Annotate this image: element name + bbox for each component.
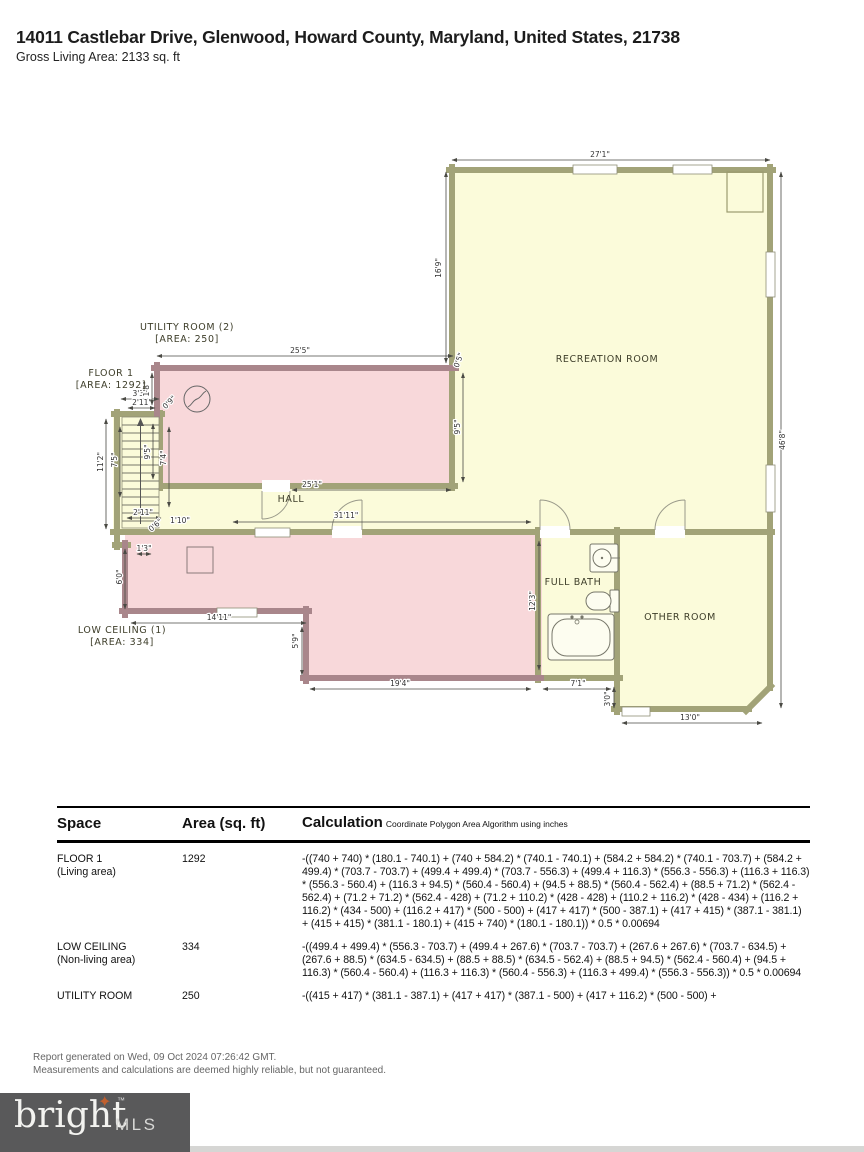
door-opening [332,526,362,538]
window [673,165,712,174]
brightmls-logo: bright ✦ ™ MLS [0,1093,190,1152]
low-ceiling-area [125,530,542,680]
sink-icon [590,544,620,572]
calculation-note: Coordinate Polygon Area Algorithm using … [386,819,568,829]
area-cell: 250 [182,990,302,1003]
room-label-full-bath: FULL BATH [545,577,602,588]
dimension-label: 11'2" [96,452,105,472]
area-cell: 334 [182,941,302,980]
door-opening [262,480,290,492]
disclaimer-text: Measurements and calculations are deemed… [33,1065,386,1076]
space-name: FLOOR 1 [57,853,182,866]
door-opening [655,526,685,538]
table-row-low-ceiling: LOW CEILING (Non-living area) 334 -((499… [57,931,810,980]
dimension-label: 3'0" [603,691,612,706]
room-area-label-utility-room: [AREA: 250] [155,334,219,345]
space-subtitle: (Non-living area) [57,954,182,967]
hall-area [113,483,545,535]
space-cell: LOW CEILING (Non-living area) [57,941,182,980]
table-row-floor-1: FLOOR 1 (Living area) 1292 -((740 + 740)… [57,843,810,931]
utility-room-area [155,365,455,488]
bathtub-icon [548,614,614,660]
door-opening [540,526,570,538]
dimension-label: 31'11" [334,511,359,520]
dimension-label: 7'1" [570,679,585,688]
col-header-space: Space [57,815,182,832]
room-label-recreation-room: RECREATION ROOM [556,354,659,365]
dimension-label: 13'0" [680,713,700,722]
dimension-label: 7'5" [110,452,119,467]
space-cell: UTILITY ROOM [57,990,182,1003]
room-label-floor-1: FLOOR 1 [88,368,133,379]
room-area-label-low-ceiling: [AREA: 334] [90,637,154,648]
dimension-label: 14'11" [207,613,232,622]
space-subtitle: (Living area) [57,866,182,879]
room-fills [113,167,773,712]
recreation-room-area [452,167,773,535]
calc-cell: -((499.4 + 499.4) * (556.3 - 703.7) + (4… [302,941,810,980]
space-name: LOW CEILING [57,941,182,954]
calc-cell: -((415 + 417) * (381.1 - 387.1) + (417 +… [302,990,810,1003]
star-icon: ✦ [98,1092,111,1111]
room-label-other-room: OTHER ROOM [644,612,716,623]
dimension-label: 25'1" [302,480,322,489]
toilet-icon [586,590,619,612]
dimension-label: 25'5" [290,346,310,355]
window [766,465,775,512]
dimension-label: 19'4" [390,679,410,688]
report-generated-text: Report generated on Wed, 09 Oct 2024 07:… [33,1052,276,1063]
window [255,528,290,537]
dimension-label: 1'10" [170,516,190,525]
dimension-label: 2'11" [132,398,152,407]
window [766,252,775,297]
dimension-label: 16'9" [434,258,443,278]
dimension-label: 9'5" [453,419,462,434]
window [573,165,617,174]
area-cell: 1292 [182,853,302,931]
dimension-label: 12'3" [528,591,537,611]
room-label-low-ceiling: LOW CEILING (1) [78,625,166,636]
table-row-utility-room: UTILITY ROOM 250 -((415 + 417) * (381.1 … [57,980,810,1003]
logo-wordmark: bright ✦ ™ [14,1095,126,1136]
room-area-label-floor-1: [AREA: 1292] [76,380,146,391]
calculation-title: Calculation [302,814,383,831]
dimension-label: 46'8" [778,430,787,450]
dimension-label: 27'1" [590,150,610,159]
room-label-utility-room: UTILITY ROOM (2) [140,322,234,333]
dimension-label: 2'11" [133,508,153,517]
dimension-label: 7'4" [159,450,168,465]
floor-plan: 27'1"16'9"46'8"25'5"0'5"9'5"25'1"31'11"3… [0,0,864,780]
space-name: UTILITY ROOM [57,990,182,1003]
col-header-area: Area (sq. ft) [182,815,302,832]
trademark-symbol: ™ [117,1096,125,1105]
room-label-hall: HALL [278,494,305,505]
space-cell: FLOOR 1 (Living area) [57,853,182,931]
calc-table: Space Area (sq. ft) CalculationCoordinat… [57,806,810,1003]
dimension-label: 5'9" [291,633,300,648]
dimension-label: 6'0" [115,569,124,584]
table-header: Space Area (sq. ft) CalculationCoordinat… [57,806,810,843]
logo-mls-text: MLS [115,1115,157,1135]
col-header-calculation: CalculationCoordinate Polygon Area Algor… [302,814,810,832]
calc-cell: -((740 + 740) * (180.1 - 740.1) + (740 +… [302,853,810,931]
window [622,707,650,716]
dimension-label: 1'3" [136,544,151,553]
dimension-label: 9'5" [143,444,152,459]
